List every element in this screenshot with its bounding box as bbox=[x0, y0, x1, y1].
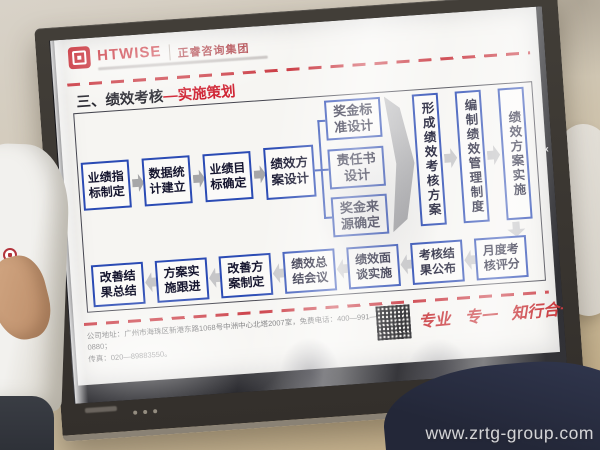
flow-step-monthly-scoring: 月度考核评分 bbox=[474, 235, 529, 281]
qr-code bbox=[375, 304, 411, 340]
flow-step-scheme-design: 绩效方案设计 bbox=[263, 145, 317, 200]
bracket-connector-line bbox=[317, 120, 325, 123]
flow-step-form-scheme: 形成绩效考核方案 bbox=[412, 93, 447, 226]
flowchart-frame: 业绩指标制定 数据统计建立 业绩目标确定 绩效方案设计 奖金标准设计 责任书设计 bbox=[73, 81, 546, 313]
flow-branch-bonus-standard: 奖金标准设计 bbox=[324, 97, 383, 141]
brand-name: HTWISE bbox=[97, 43, 162, 64]
flow-step-kpi-design: 业绩指标制定 bbox=[81, 160, 132, 211]
logo-divider bbox=[169, 44, 171, 60]
arrow-right-icon bbox=[486, 145, 500, 166]
presentation-slide: HTWISE 正睿咨询集团 三、绩效考核—实施策划 业绩指标制定 数据统计建立 bbox=[54, 7, 560, 386]
flow-step-results-announcement: 考核结果公布 bbox=[410, 239, 465, 285]
flow-step-implement-scheme: 绩效方案实施 bbox=[498, 87, 533, 220]
arrow-right-icon bbox=[444, 148, 458, 169]
right-sidebar-toggle[interactable]: ‹ bbox=[545, 144, 549, 155]
bracket-connector-line bbox=[324, 216, 332, 219]
bezel-indicator-icons bbox=[133, 409, 157, 415]
presenter-person bbox=[0, 144, 66, 450]
flow-step-summary-meeting: 绩效总结会议 bbox=[282, 248, 337, 294]
flow-step-result-summary: 改善结果总结 bbox=[91, 262, 146, 308]
flow-branch-responsibility-letter: 责任书设计 bbox=[327, 146, 386, 190]
flow-step-interview: 绩效面谈实施 bbox=[346, 244, 401, 290]
flow-step-compile-system: 编制绩效管理制度 bbox=[455, 90, 490, 223]
flow-step-data-statistics: 数据统计建立 bbox=[142, 155, 193, 206]
htwise-logo-icon bbox=[68, 46, 91, 69]
flow-branch-bonus-source: 奖金来源确定 bbox=[331, 194, 390, 238]
watermark-text: www.zrtg-group.com bbox=[426, 423, 595, 444]
footer-contact: 公司地址：广州市海珠区新港东路1068号中洲中心北塔2007室，免费电话：400… bbox=[86, 311, 380, 365]
display-screen: HTWISE 正睿咨询集团 三、绩效考核—实施策划 业绩指标制定 数据统计建立 bbox=[49, 6, 567, 404]
presenter-pants bbox=[0, 396, 54, 450]
company-logo: HTWISE 正睿咨询集团 bbox=[68, 35, 251, 76]
monitor-brand-label bbox=[85, 406, 117, 413]
flow-step-improvement-plan: 改善方案制定 bbox=[219, 253, 274, 299]
flow-step-follow-up: 方案实施跟进 bbox=[155, 257, 210, 303]
meeting-room-photo: HTWISE 正睿咨询集团 三、绩效考核—实施策划 业绩指标制定 数据统计建立 bbox=[0, 0, 600, 450]
flow-step-target-setting: 业绩目标确定 bbox=[202, 151, 253, 202]
